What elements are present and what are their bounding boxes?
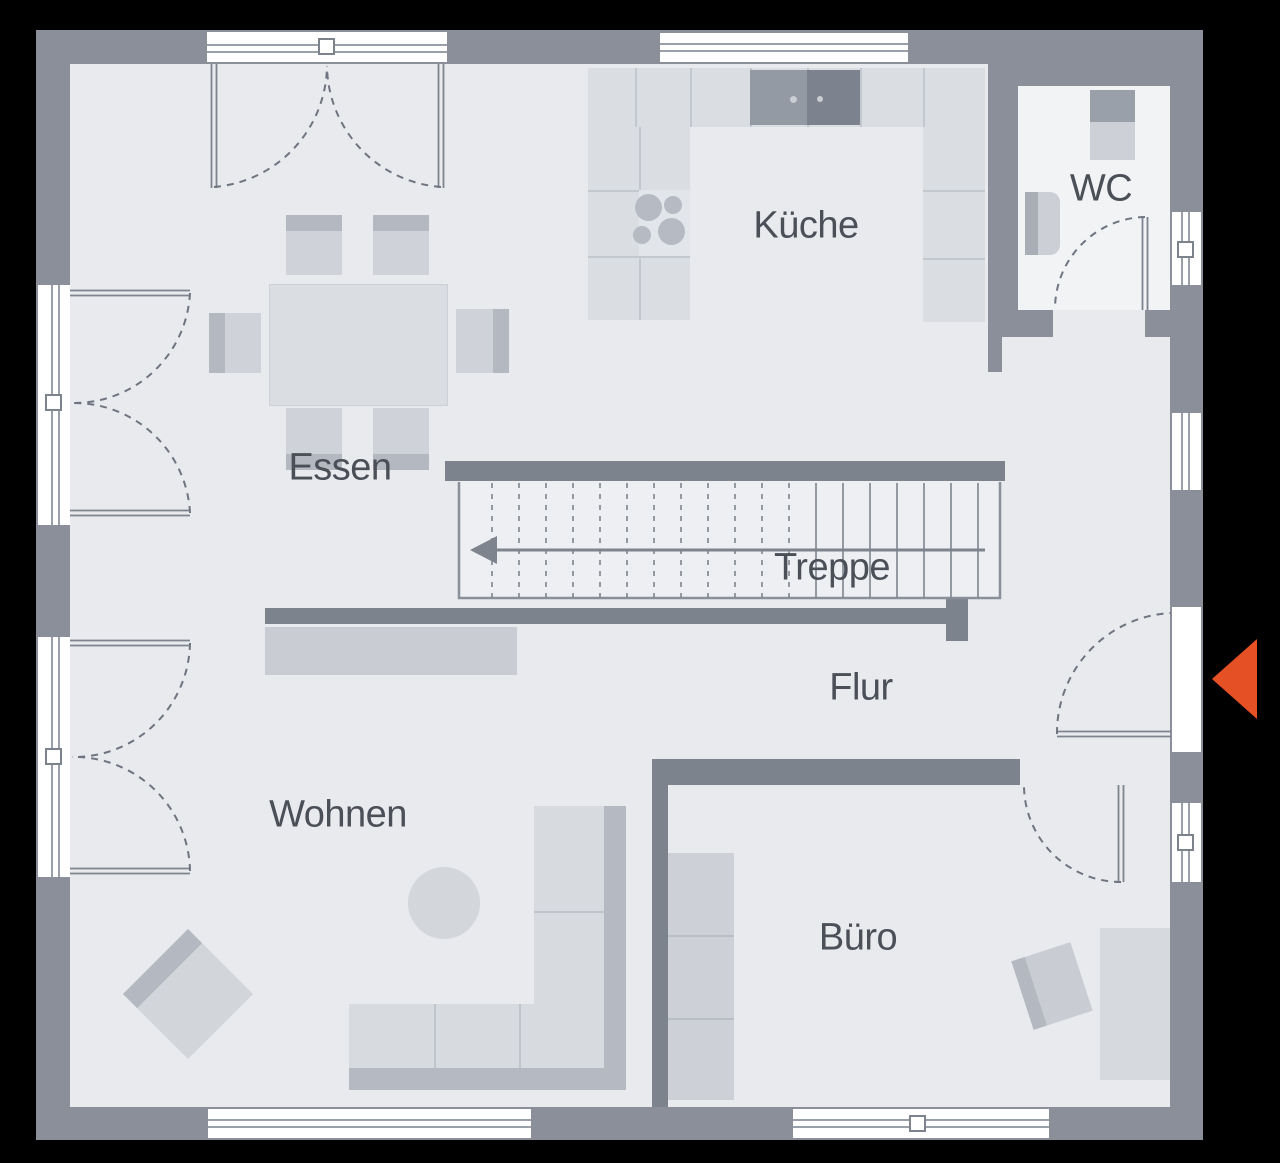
room-label-flur: Flur [829,667,892,710]
door-swing-arc [327,66,441,187]
door-swing-arc [72,293,190,403]
door-leaf-wc [1143,217,1148,310]
door-swing-arc [214,66,327,187]
door-swing-arc-office [1024,786,1121,882]
stairs-treads-dashed [492,483,789,598]
door-leaf-office [1119,785,1124,882]
door-swing-arc [72,643,190,757]
door-swing-arc-entrance [1057,613,1171,734]
door-swing-arc [72,403,190,513]
door-swing-arc-wc [1055,217,1145,309]
entrance-arrow [1212,639,1257,719]
door-leaf-entrance [1057,732,1171,737]
door-leaf [439,64,444,188]
door-swing-arcs [72,66,1171,882]
room-label-wohnen: Wohnen [269,794,407,837]
door-swing-arc [72,757,190,871]
door-leaf [70,869,190,874]
door-leaf [70,291,190,296]
room-label-treppe: Treppe [774,547,890,590]
floor-plan: Küche WC Essen Treppe Flur Wohnen Büro [0,0,1280,1163]
room-label-essen: Essen [288,447,391,490]
room-label-buero: Büro [819,917,897,960]
stairs-direction-arrow-icon [470,536,497,564]
room-label-kueche: Küche [753,205,858,248]
room-label-wc: WC [1070,168,1132,211]
door-leaves [70,64,1171,882]
stairs-border [459,482,1000,598]
door-leaf [212,64,217,188]
door-leaf [70,641,190,646]
door-leaf [70,511,190,516]
